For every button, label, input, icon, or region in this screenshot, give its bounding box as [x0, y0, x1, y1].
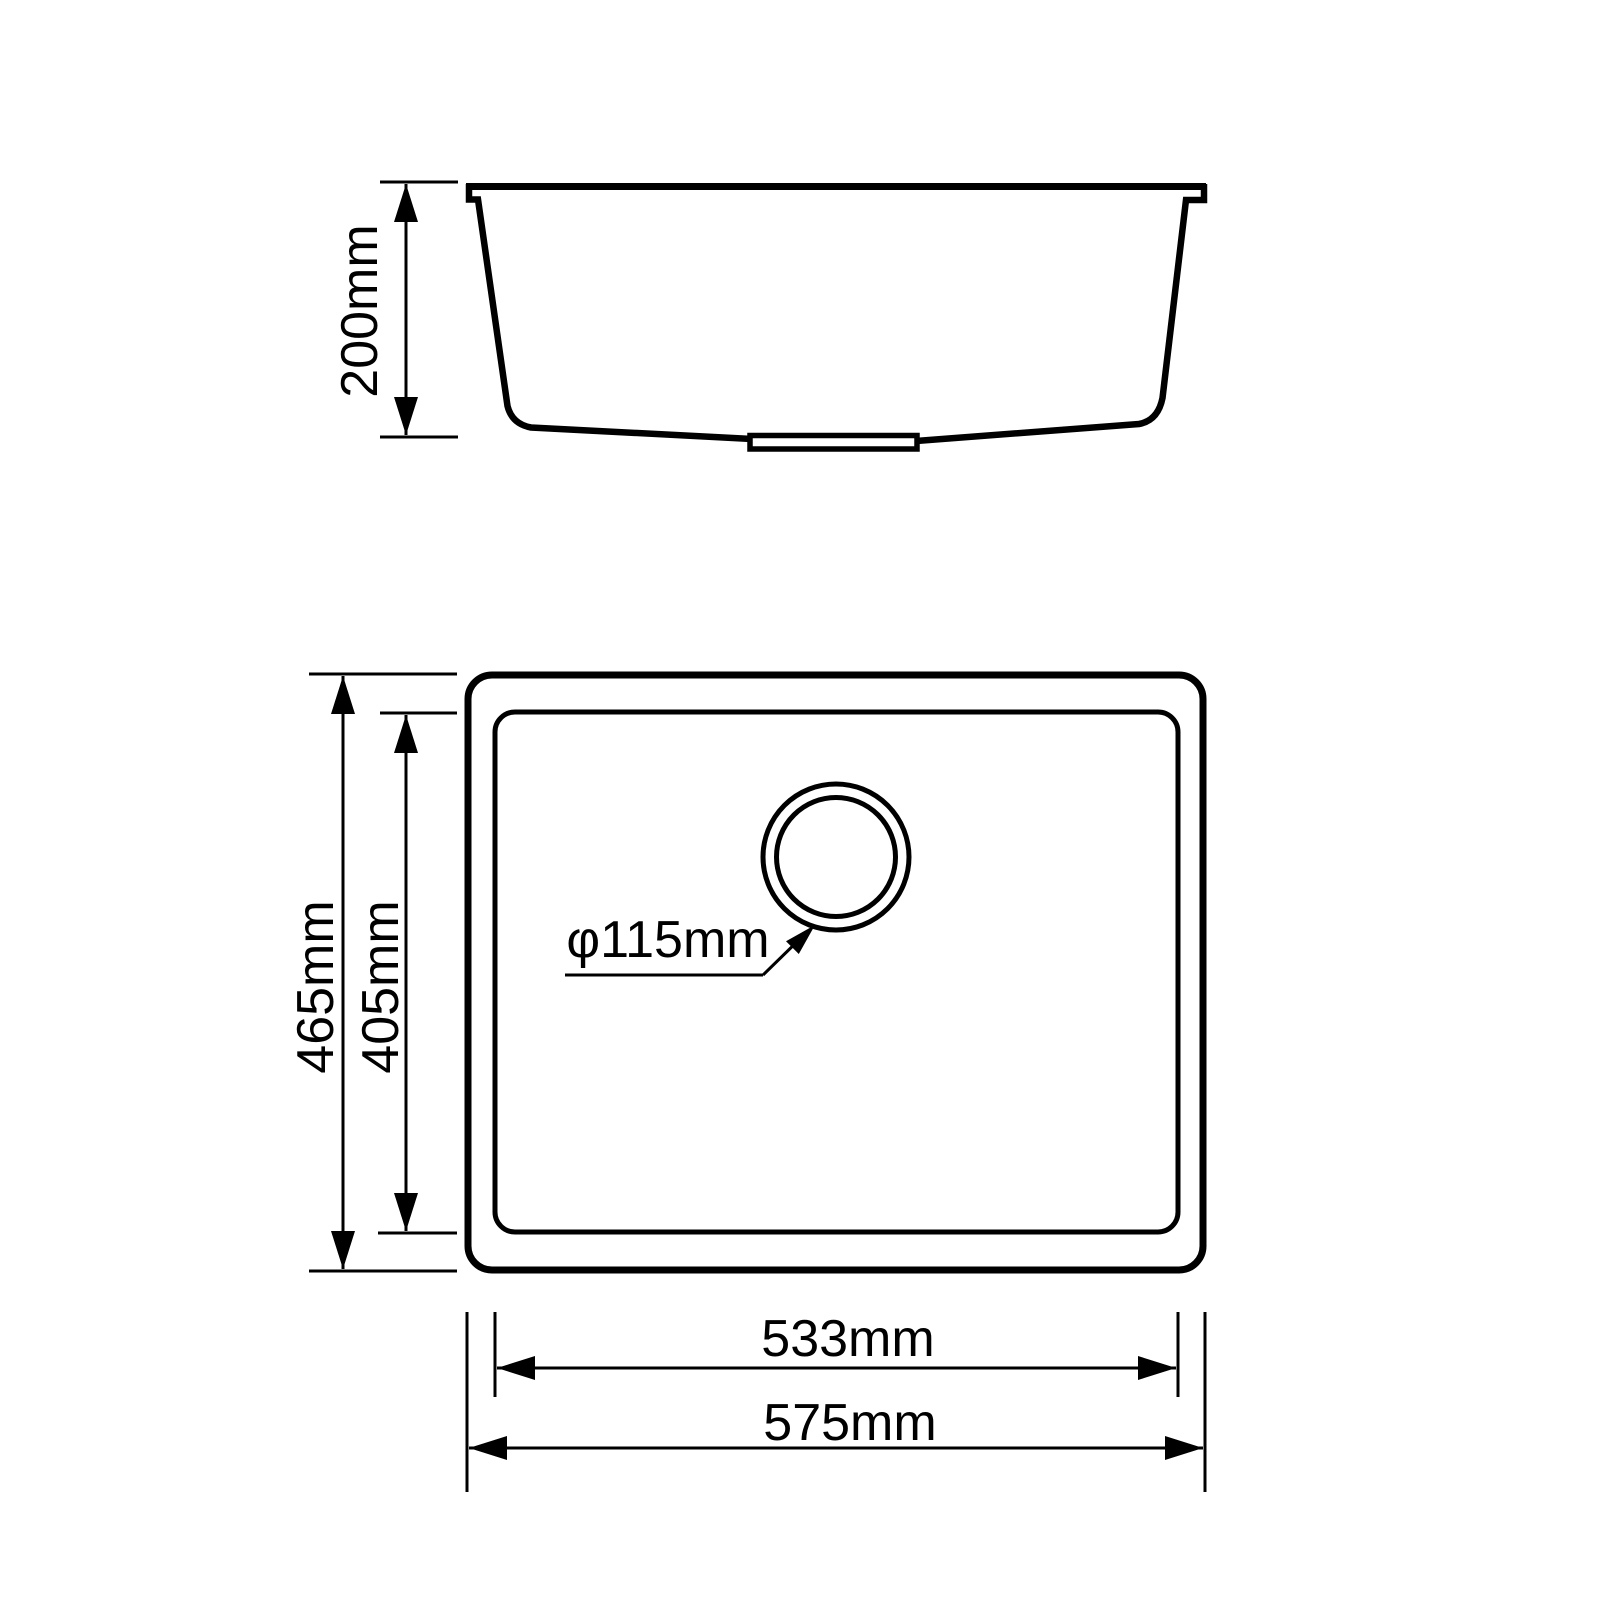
dim-height-overall-label: 465mm — [287, 900, 345, 1073]
dim-width-bowl-arrow-right-icon — [1138, 1356, 1176, 1380]
dim-depth-arrow-down-icon — [394, 397, 418, 435]
dim-width-overall-arrow-right-icon — [1165, 1436, 1203, 1460]
dim-height-bowl-arrow-down-icon — [394, 1193, 418, 1231]
drain-outer-circle — [763, 784, 909, 930]
drawing-svg: 200mm φ115mm 465mm 405mm — [0, 0, 1600, 1600]
dim-width-bowl-arrow-left-icon — [497, 1356, 535, 1380]
dim-depth: 200mm — [331, 182, 458, 437]
top-view-bowl — [495, 712, 1178, 1232]
dim-drain: φ115mm — [565, 911, 815, 975]
dim-width-bowl: 533mm — [495, 1310, 1178, 1397]
dim-height-bowl-label: 405mm — [352, 900, 410, 1073]
top-view — [468, 675, 1203, 1270]
side-view — [466, 184, 1206, 449]
top-view-outer-rim — [468, 675, 1203, 1270]
side-view-left-profile — [469, 184, 752, 439]
dim-depth-label: 200mm — [331, 224, 389, 397]
dim-height-overall-arrow-up-icon — [331, 676, 355, 714]
dim-height-bowl: 405mm — [352, 713, 457, 1233]
side-view-right-profile — [916, 184, 1204, 441]
side-view-drain-recess — [750, 436, 917, 450]
sink-dimension-drawing: 200mm φ115mm 465mm 405mm — [0, 0, 1600, 1600]
dim-height-overall-arrow-down-icon — [331, 1231, 355, 1269]
dim-drain-label: φ115mm — [566, 911, 769, 969]
dim-width-overall-label: 575mm — [763, 1394, 936, 1452]
dim-depth-arrow-up-icon — [394, 184, 418, 222]
dim-width-bowl-label: 533mm — [761, 1310, 934, 1368]
drain-inner-circle — [777, 798, 896, 917]
dim-height-bowl-arrow-up-icon — [394, 715, 418, 753]
dim-width-overall-arrow-left-icon — [469, 1436, 507, 1460]
